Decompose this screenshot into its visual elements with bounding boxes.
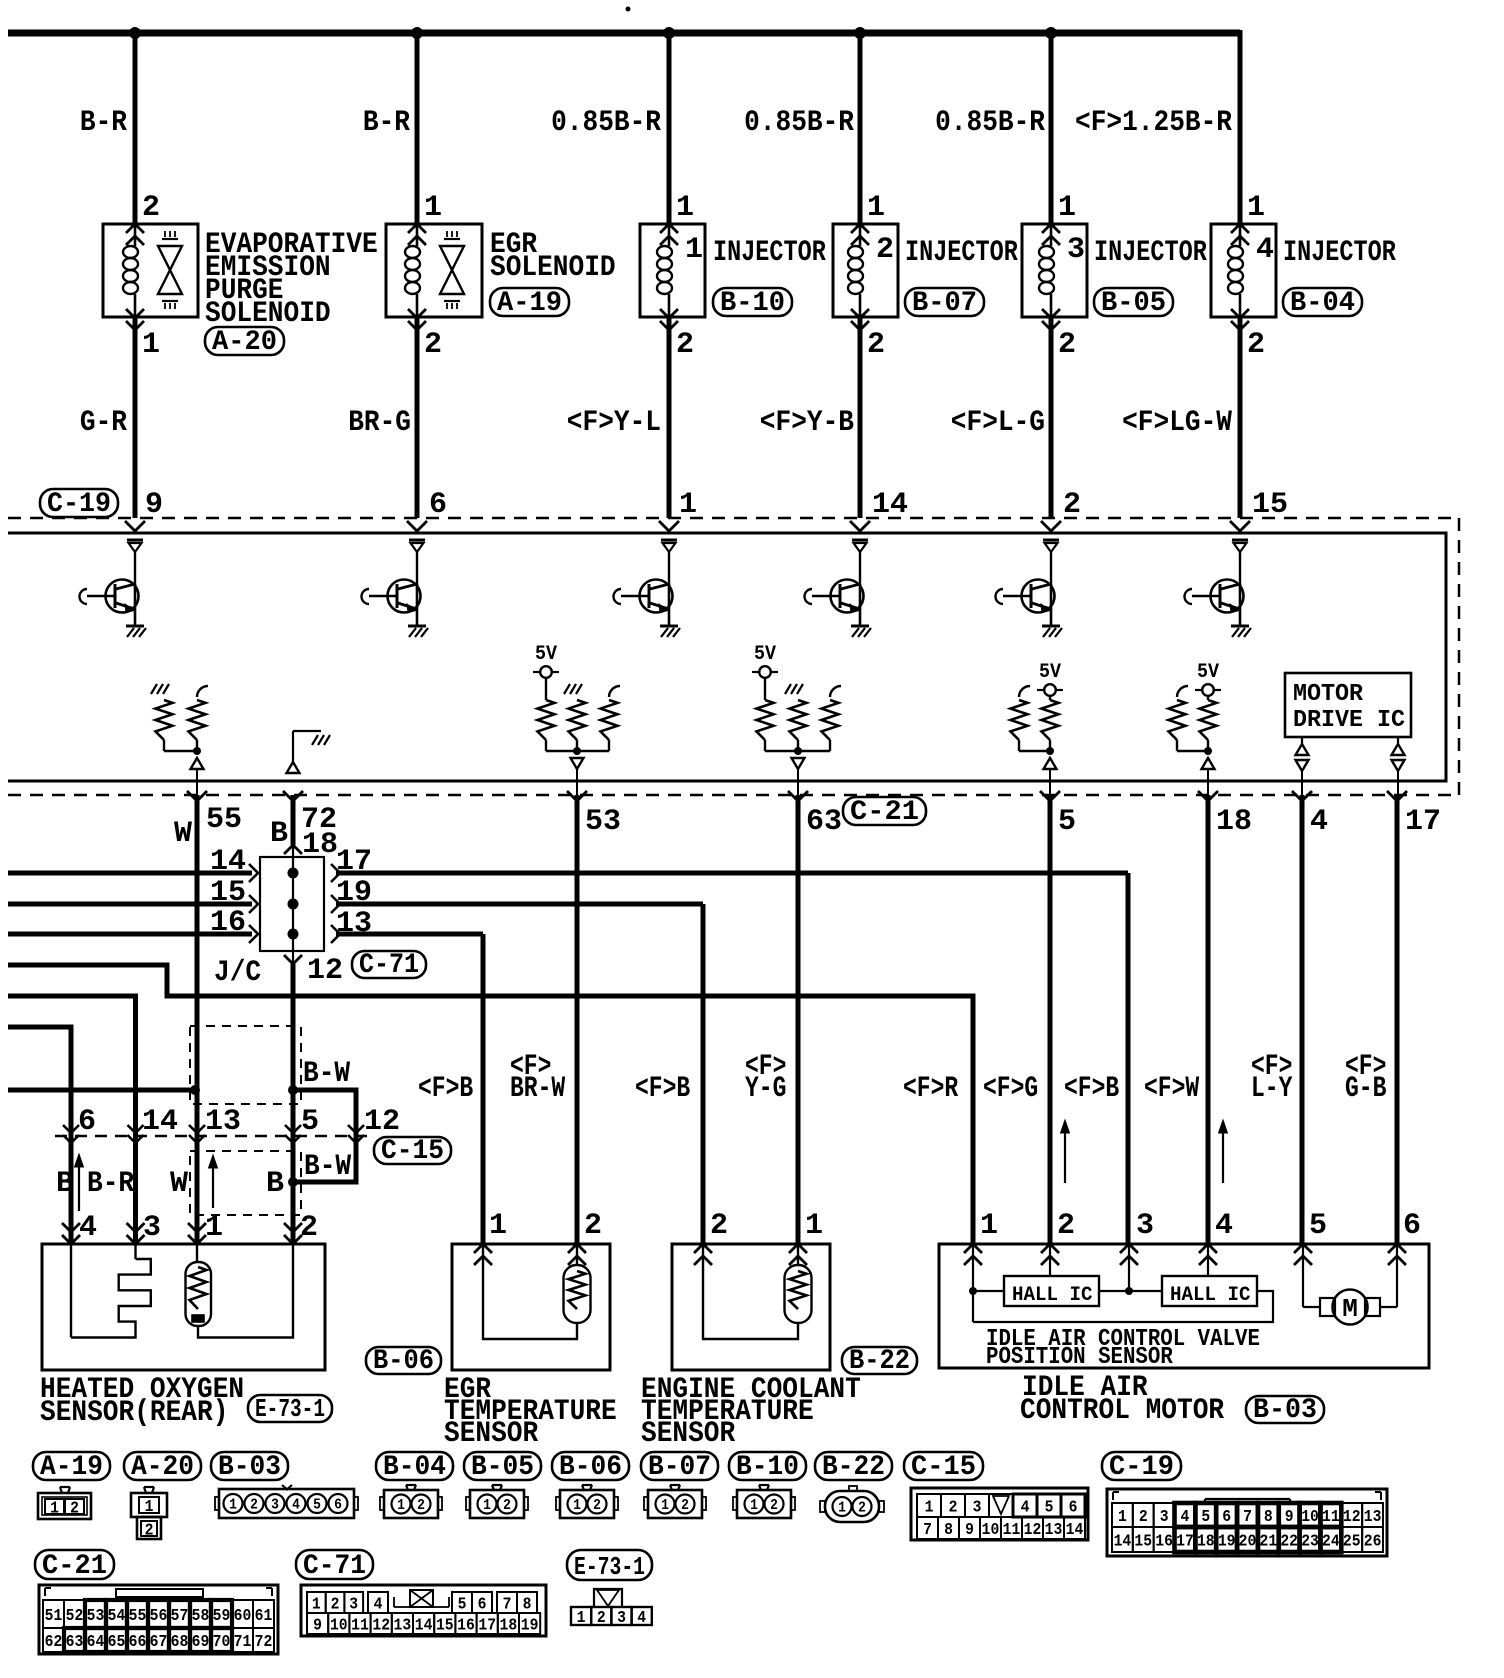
svg-text:B-04: B-04 xyxy=(383,1452,446,1483)
svg-text:18: 18 xyxy=(500,1616,518,1635)
svg-text:4: 4 xyxy=(1021,1498,1030,1517)
svg-text:15: 15 xyxy=(436,1616,454,1635)
svg-text:10: 10 xyxy=(982,1521,1000,1540)
svg-text:<F>B: <F>B xyxy=(418,1072,473,1106)
svg-text:12: 12 xyxy=(1343,1508,1361,1527)
svg-text:12: 12 xyxy=(372,1616,390,1635)
svg-text:W: W xyxy=(170,1167,188,1201)
svg-text:C-15: C-15 xyxy=(381,1136,444,1167)
svg-text:B-W: B-W xyxy=(304,1150,351,1184)
svg-text:19: 19 xyxy=(1218,1532,1236,1551)
svg-text:B-06: B-06 xyxy=(373,1346,434,1377)
svg-text:8: 8 xyxy=(523,1595,532,1614)
svg-text:4: 4 xyxy=(292,1497,300,1514)
svg-text:SENSOR: SENSOR xyxy=(444,1417,538,1451)
svg-text:5V: 5V xyxy=(535,643,557,666)
svg-text:13: 13 xyxy=(205,1105,241,1139)
svg-text:2: 2 xyxy=(876,233,894,267)
svg-text:<F>R: <F>R xyxy=(903,1072,958,1106)
svg-text:2: 2 xyxy=(867,328,885,362)
svg-text:5V: 5V xyxy=(1039,661,1061,684)
svg-text:A-20: A-20 xyxy=(212,327,277,358)
svg-text:1: 1 xyxy=(676,191,694,225)
svg-text:POSITION SENSOR: POSITION SENSOR xyxy=(986,1344,1173,1371)
svg-text:10: 10 xyxy=(1301,1508,1319,1527)
svg-text:4: 4 xyxy=(1310,805,1328,839)
svg-text:0.85B-R: 0.85B-R xyxy=(551,106,661,140)
svg-text:24: 24 xyxy=(1322,1532,1340,1551)
svg-text:DRIVE IC: DRIVE IC xyxy=(1293,707,1405,734)
svg-text:B-R: B-R xyxy=(87,1167,134,1201)
svg-text:5: 5 xyxy=(1058,805,1076,839)
svg-text:6: 6 xyxy=(334,1497,342,1514)
svg-text:INJECTOR: INJECTOR xyxy=(905,236,1018,270)
svg-text:1: 1 xyxy=(489,1209,507,1243)
svg-text:<F>L-G: <F>L-G xyxy=(951,406,1045,440)
svg-text:2: 2 xyxy=(250,1497,258,1514)
svg-text:18: 18 xyxy=(302,828,338,862)
svg-text:2: 2 xyxy=(417,1497,425,1514)
svg-text:INJECTOR: INJECTOR xyxy=(713,236,826,270)
svg-text:54: 54 xyxy=(108,1607,126,1626)
svg-text:14: 14 xyxy=(1066,1521,1084,1540)
svg-text:0.85B-R: 0.85B-R xyxy=(935,106,1045,140)
svg-text:Y-G: Y-G xyxy=(745,1072,786,1106)
svg-text:<F>G: <F>G xyxy=(983,1072,1038,1106)
svg-text:67: 67 xyxy=(150,1633,168,1652)
svg-text:5V: 5V xyxy=(754,643,776,666)
svg-text:8: 8 xyxy=(1264,1508,1273,1527)
svg-text:1: 1 xyxy=(661,1497,669,1514)
svg-text:1: 1 xyxy=(483,1497,491,1514)
svg-text:60: 60 xyxy=(234,1607,252,1626)
svg-text:2: 2 xyxy=(331,1595,340,1614)
svg-text:SENSOR: SENSOR xyxy=(641,1417,735,1451)
svg-text:HALL IC: HALL IC xyxy=(1170,1284,1251,1307)
svg-text:7: 7 xyxy=(503,1595,512,1614)
svg-text:2: 2 xyxy=(503,1497,511,1514)
svg-text:1: 1 xyxy=(685,233,703,267)
svg-text:53: 53 xyxy=(585,805,621,839)
svg-text:2: 2 xyxy=(593,1497,601,1514)
svg-text:23: 23 xyxy=(1301,1532,1319,1551)
svg-text:B-03: B-03 xyxy=(1253,1395,1317,1426)
svg-text:C-21: C-21 xyxy=(42,1551,107,1582)
svg-text:C-71: C-71 xyxy=(359,950,419,981)
svg-text:3: 3 xyxy=(1136,1209,1154,1243)
svg-text:21: 21 xyxy=(1260,1532,1278,1551)
svg-text:1: 1 xyxy=(50,1499,59,1518)
svg-text:C-21: C-21 xyxy=(850,797,919,828)
svg-text:4: 4 xyxy=(637,1609,646,1628)
svg-text:61: 61 xyxy=(255,1607,273,1626)
svg-text:INJECTOR: INJECTOR xyxy=(1094,236,1207,270)
svg-text:71: 71 xyxy=(234,1633,252,1652)
svg-text:<F>W: <F>W xyxy=(1144,1072,1199,1106)
svg-text:B: B xyxy=(266,1167,284,1201)
svg-text:1: 1 xyxy=(1058,191,1076,225)
svg-text:7: 7 xyxy=(923,1521,932,1540)
svg-text:2: 2 xyxy=(710,1209,728,1243)
svg-text:2: 2 xyxy=(300,1211,318,1245)
svg-text:11: 11 xyxy=(1003,1521,1021,1540)
svg-text:C-19: C-19 xyxy=(47,489,111,520)
svg-text:L-Y: L-Y xyxy=(1251,1072,1292,1106)
svg-text:HALL IC: HALL IC xyxy=(1012,1284,1093,1307)
svg-text:M: M xyxy=(1342,1294,1358,1324)
svg-text:2: 2 xyxy=(145,1521,154,1540)
svg-text:B-R: B-R xyxy=(80,106,127,140)
svg-text:58: 58 xyxy=(192,1607,210,1626)
svg-text:B-05: B-05 xyxy=(471,1452,534,1483)
svg-text:4: 4 xyxy=(1256,233,1274,267)
svg-text:2: 2 xyxy=(424,328,442,362)
svg-text:12: 12 xyxy=(1024,1521,1042,1540)
svg-text:63: 63 xyxy=(66,1633,84,1652)
svg-text:C-19: C-19 xyxy=(1109,1452,1174,1483)
svg-text:4: 4 xyxy=(1215,1209,1233,1243)
svg-text:6: 6 xyxy=(478,1595,487,1614)
svg-text:B-03: B-03 xyxy=(218,1452,281,1483)
svg-text:25: 25 xyxy=(1343,1532,1361,1551)
svg-text:INJECTOR: INJECTOR xyxy=(1283,236,1396,270)
svg-text:<F>Y-L: <F>Y-L xyxy=(567,406,661,440)
svg-text:2: 2 xyxy=(681,1497,689,1514)
svg-text:1: 1 xyxy=(229,1497,237,1514)
svg-text:3: 3 xyxy=(271,1497,279,1514)
svg-text:14: 14 xyxy=(142,1105,178,1139)
svg-text:6: 6 xyxy=(1403,1209,1421,1243)
svg-text:E-73-1: E-73-1 xyxy=(574,1552,645,1582)
svg-text:16: 16 xyxy=(457,1616,475,1635)
svg-text:B-22: B-22 xyxy=(822,1452,885,1483)
svg-text:4: 4 xyxy=(374,1595,383,1614)
svg-text:B-07: B-07 xyxy=(912,288,977,319)
svg-text:1: 1 xyxy=(424,191,442,225)
svg-text:17: 17 xyxy=(1176,1532,1194,1551)
svg-text:2: 2 xyxy=(858,1500,866,1517)
svg-text:57: 57 xyxy=(171,1607,189,1626)
svg-text:CONTROL MOTOR: CONTROL MOTOR xyxy=(1020,1394,1224,1428)
svg-text:2: 2 xyxy=(676,328,694,362)
svg-text:J/C: J/C xyxy=(214,956,261,990)
svg-text:51: 51 xyxy=(45,1607,63,1626)
svg-text:B-R: B-R xyxy=(363,106,410,140)
svg-text:2: 2 xyxy=(70,1499,79,1518)
svg-text:B-10: B-10 xyxy=(720,288,785,319)
svg-text:C-15: C-15 xyxy=(911,1452,976,1483)
svg-text:SENSOR(REAR): SENSOR(REAR) xyxy=(40,1396,228,1430)
svg-text:10: 10 xyxy=(330,1616,348,1635)
svg-text:65: 65 xyxy=(108,1633,126,1652)
svg-text:22: 22 xyxy=(1280,1532,1298,1551)
svg-text:B-04: B-04 xyxy=(1290,288,1355,319)
svg-text:<F>1.25B-R: <F>1.25B-R xyxy=(1075,106,1232,140)
svg-text:17: 17 xyxy=(1405,805,1441,839)
svg-text:5: 5 xyxy=(458,1595,467,1614)
svg-text:11: 11 xyxy=(1322,1508,1340,1527)
svg-text:14: 14 xyxy=(415,1616,433,1635)
svg-text:B-W: B-W xyxy=(303,1057,350,1091)
svg-text:A-20: A-20 xyxy=(131,1452,194,1483)
svg-text:15: 15 xyxy=(1134,1532,1152,1551)
svg-text:5: 5 xyxy=(313,1497,321,1514)
svg-text:1: 1 xyxy=(577,1609,586,1628)
svg-text:2: 2 xyxy=(1247,328,1265,362)
svg-text:B: B xyxy=(56,1167,74,1201)
svg-text:5V: 5V xyxy=(1197,661,1219,684)
svg-text:<F>B: <F>B xyxy=(1064,1072,1119,1106)
svg-text:4: 4 xyxy=(79,1211,97,1245)
svg-text:9: 9 xyxy=(313,1616,322,1635)
svg-text:1: 1 xyxy=(312,1595,321,1614)
svg-text:66: 66 xyxy=(129,1633,147,1652)
svg-text:6: 6 xyxy=(1222,1508,1231,1527)
svg-text:72: 72 xyxy=(255,1633,273,1652)
svg-text:1: 1 xyxy=(573,1497,581,1514)
svg-text:G-B: G-B xyxy=(1345,1072,1386,1106)
svg-text:9: 9 xyxy=(1285,1508,1294,1527)
svg-text:13: 13 xyxy=(394,1616,412,1635)
svg-text:8: 8 xyxy=(944,1521,953,1540)
svg-text:4: 4 xyxy=(1181,1508,1190,1527)
svg-text:2: 2 xyxy=(597,1609,606,1628)
svg-text:1: 1 xyxy=(145,1498,154,1517)
svg-text:1: 1 xyxy=(1247,191,1265,225)
svg-text:3: 3 xyxy=(1160,1508,1169,1527)
svg-text:20: 20 xyxy=(1239,1532,1257,1551)
svg-text:1: 1 xyxy=(980,1209,998,1243)
svg-text:19: 19 xyxy=(521,1616,539,1635)
svg-text:5: 5 xyxy=(301,1105,319,1139)
svg-text:1: 1 xyxy=(750,1497,758,1514)
svg-text:1: 1 xyxy=(142,328,160,362)
svg-text:13: 13 xyxy=(1364,1508,1382,1527)
svg-text:2: 2 xyxy=(584,1209,602,1243)
svg-text:5: 5 xyxy=(1045,1498,1054,1517)
svg-text:BR-W: BR-W xyxy=(510,1072,565,1106)
svg-text:1: 1 xyxy=(205,1211,223,1245)
svg-text:2: 2 xyxy=(1057,1209,1075,1243)
svg-text:70: 70 xyxy=(213,1633,231,1652)
svg-text:<F>B: <F>B xyxy=(635,1072,690,1106)
svg-text:26: 26 xyxy=(1364,1532,1382,1551)
svg-text:3: 3 xyxy=(1067,233,1085,267)
svg-text:0.85B-R: 0.85B-R xyxy=(744,106,854,140)
svg-text:12: 12 xyxy=(307,954,343,988)
svg-text:<F>LG-W: <F>LG-W xyxy=(1122,406,1232,440)
svg-text:64: 64 xyxy=(87,1633,105,1652)
svg-text:1: 1 xyxy=(1118,1508,1127,1527)
svg-text:1: 1 xyxy=(838,1500,846,1517)
svg-text:68: 68 xyxy=(171,1633,189,1652)
svg-text:7: 7 xyxy=(1243,1508,1252,1527)
svg-text:69: 69 xyxy=(192,1633,210,1652)
svg-text:53: 53 xyxy=(87,1607,105,1626)
svg-text:55: 55 xyxy=(129,1607,147,1626)
svg-text:A-19: A-19 xyxy=(40,1452,103,1483)
svg-text:17: 17 xyxy=(478,1616,496,1635)
svg-text:B-10: B-10 xyxy=(736,1452,799,1483)
svg-text:B: B xyxy=(270,817,288,851)
svg-text:3: 3 xyxy=(617,1609,626,1628)
svg-text:11: 11 xyxy=(351,1616,369,1635)
svg-text:13: 13 xyxy=(1045,1521,1063,1540)
svg-text:16: 16 xyxy=(1155,1532,1173,1551)
svg-text:2: 2 xyxy=(1139,1508,1148,1527)
svg-text:1: 1 xyxy=(925,1498,934,1517)
svg-text:56: 56 xyxy=(150,1607,168,1626)
svg-text:9: 9 xyxy=(965,1521,974,1540)
svg-text:55: 55 xyxy=(206,803,242,837)
svg-text:1: 1 xyxy=(397,1497,405,1514)
svg-text:2: 2 xyxy=(1058,328,1076,362)
svg-text:14: 14 xyxy=(1114,1532,1132,1551)
svg-text:3: 3 xyxy=(143,1211,161,1245)
svg-text:2: 2 xyxy=(142,191,160,225)
svg-text:SOLENOID: SOLENOID xyxy=(490,251,616,285)
svg-text:6: 6 xyxy=(1069,1498,1078,1517)
svg-text:1: 1 xyxy=(805,1209,823,1243)
svg-text:MOTOR: MOTOR xyxy=(1293,681,1364,708)
svg-text:<F>Y-B: <F>Y-B xyxy=(760,406,854,440)
svg-text:W: W xyxy=(174,817,192,851)
svg-text:B-05: B-05 xyxy=(1101,288,1166,319)
svg-text:2: 2 xyxy=(770,1497,778,1514)
svg-text:5: 5 xyxy=(1309,1209,1327,1243)
svg-text:18: 18 xyxy=(1197,1532,1215,1551)
svg-text:5: 5 xyxy=(1201,1508,1210,1527)
svg-text:63: 63 xyxy=(806,805,842,839)
svg-text:C-71: C-71 xyxy=(303,1551,366,1582)
svg-text:59: 59 xyxy=(213,1607,231,1626)
svg-text:A-19: A-19 xyxy=(497,288,562,319)
svg-text:G-R: G-R xyxy=(80,406,127,440)
svg-text:3: 3 xyxy=(973,1498,982,1517)
svg-text:52: 52 xyxy=(66,1607,84,1626)
svg-text:B-07: B-07 xyxy=(648,1452,711,1483)
svg-text:12: 12 xyxy=(364,1105,400,1139)
svg-text:1: 1 xyxy=(867,191,885,225)
svg-text:B-06: B-06 xyxy=(559,1452,622,1483)
svg-text:BR-G: BR-G xyxy=(348,406,411,440)
svg-text:62: 62 xyxy=(45,1633,63,1652)
svg-text:E-73-1: E-73-1 xyxy=(255,1394,325,1424)
svg-text:18: 18 xyxy=(1216,805,1252,839)
svg-text:6: 6 xyxy=(78,1105,96,1139)
svg-text:3: 3 xyxy=(349,1595,358,1614)
svg-text:2: 2 xyxy=(949,1498,958,1517)
